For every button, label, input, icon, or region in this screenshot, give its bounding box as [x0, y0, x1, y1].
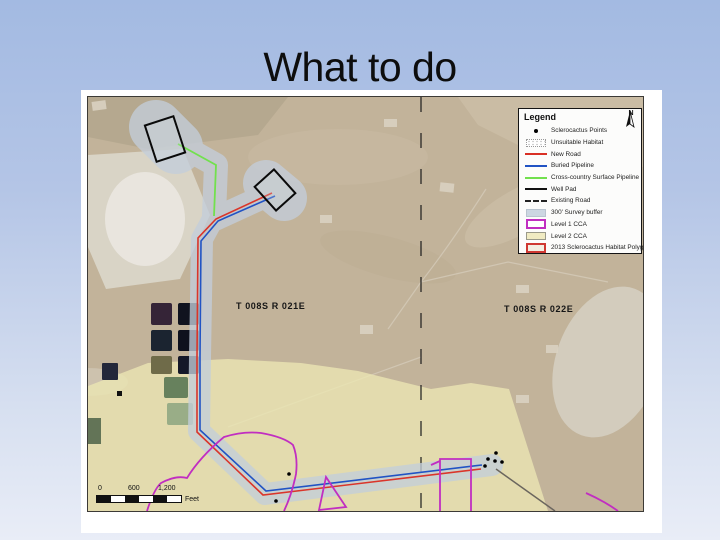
- blue-line-swatch-icon: [524, 165, 548, 167]
- scale-bar-ticks: 0 600 1,200: [96, 485, 236, 493]
- legend-title: Legend: [524, 112, 637, 125]
- scale-bar: 0 600 1,200 Feet: [96, 485, 236, 503]
- green-line-swatch-icon: [524, 177, 548, 179]
- legend-item-existing-road: Existing Road: [524, 195, 637, 207]
- legend-item-well-pad: Well Pad: [524, 183, 637, 195]
- map-figure: T 008S R 021E T 008S R 022E Legend N Scl…: [81, 90, 662, 533]
- red-outline-swatch-icon: [524, 243, 548, 253]
- legend-item-sclerocactus-points: Sclerocactus Points: [524, 125, 637, 137]
- buffer-patch-swatch-icon: [524, 209, 548, 217]
- map-view: T 008S R 021E T 008S R 022E Legend N Scl…: [87, 96, 644, 512]
- point-swatch-icon: [524, 129, 548, 133]
- scale-tick: 1,200: [158, 485, 176, 492]
- township-label-right: T 008S R 022E: [504, 304, 573, 314]
- black-line-swatch-icon: [524, 188, 548, 190]
- presentation-slide: What to do: [0, 0, 720, 540]
- legend-item-unsuitable-habitat: Unsuitable Habitat: [524, 137, 637, 149]
- map-legend: Legend N Sclerocactus Points Unsuitable …: [518, 108, 642, 254]
- red-line-swatch-icon: [524, 153, 548, 155]
- scale-bar-segments: [96, 495, 182, 503]
- legend-item-new-road: New Road: [524, 148, 637, 160]
- scale-bar-unit: Feet: [185, 496, 199, 503]
- legend-item-2013-habitat-polygon: 2013 Sclerocactus Habitat Polygon: [524, 242, 637, 254]
- dotted-patch-swatch-icon: [524, 139, 548, 147]
- legend-item-survey-buffer: 300' Survey buffer: [524, 207, 637, 219]
- magenta-outline-swatch-icon: [524, 219, 548, 229]
- legend-item-level1-cca: Level 1 CCA: [524, 219, 637, 231]
- scale-tick: 0: [98, 485, 102, 492]
- legend-item-buried-pipeline: Buried Pipeline: [524, 160, 637, 172]
- township-label-left: T 008S R 021E: [236, 301, 305, 311]
- legend-item-cross-country-pipeline: Cross-country Surface Pipeline: [524, 172, 637, 184]
- dashed-line-swatch-icon: [524, 200, 548, 202]
- legend-item-level2-cca: Level 2 CCA: [524, 230, 637, 242]
- north-arrow-icon: [624, 110, 636, 129]
- scale-tick: 600: [128, 485, 140, 492]
- page-title: What to do: [0, 44, 720, 91]
- north-arrow: N: [624, 110, 638, 117]
- yellow-patch-swatch-icon: [524, 232, 548, 240]
